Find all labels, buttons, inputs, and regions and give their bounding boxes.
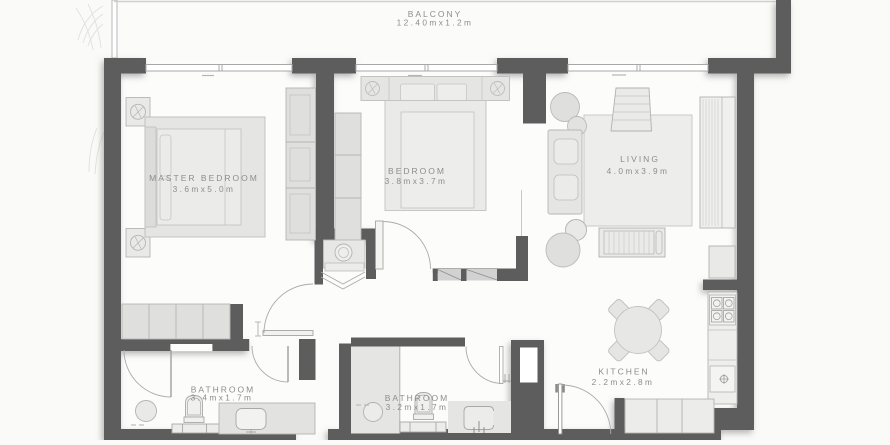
svg-text:MASTER BEDROOM: MASTER BEDROOM bbox=[149, 173, 259, 183]
svg-text:KITCHEN: KITCHEN bbox=[598, 367, 649, 377]
svg-text:BEDROOM: BEDROOM bbox=[388, 166, 446, 176]
svg-text:3.4mx1.7m: 3.4mx1.7m bbox=[191, 393, 254, 403]
svg-text:4.0mx3.9m: 4.0mx3.9m bbox=[607, 166, 670, 176]
svg-text:LIVING: LIVING bbox=[620, 154, 660, 164]
svg-text:2.2mx2.8m: 2.2mx2.8m bbox=[592, 377, 655, 387]
svg-text:12.40mx1.2m: 12.40mx1.2m bbox=[397, 18, 474, 28]
svg-text:3.8mx3.7m: 3.8mx3.7m bbox=[385, 176, 448, 186]
svg-text:3.2mx1.7m: 3.2mx1.7m bbox=[386, 402, 449, 412]
svg-text:3.6mx5.0m: 3.6mx5.0m bbox=[173, 184, 236, 194]
